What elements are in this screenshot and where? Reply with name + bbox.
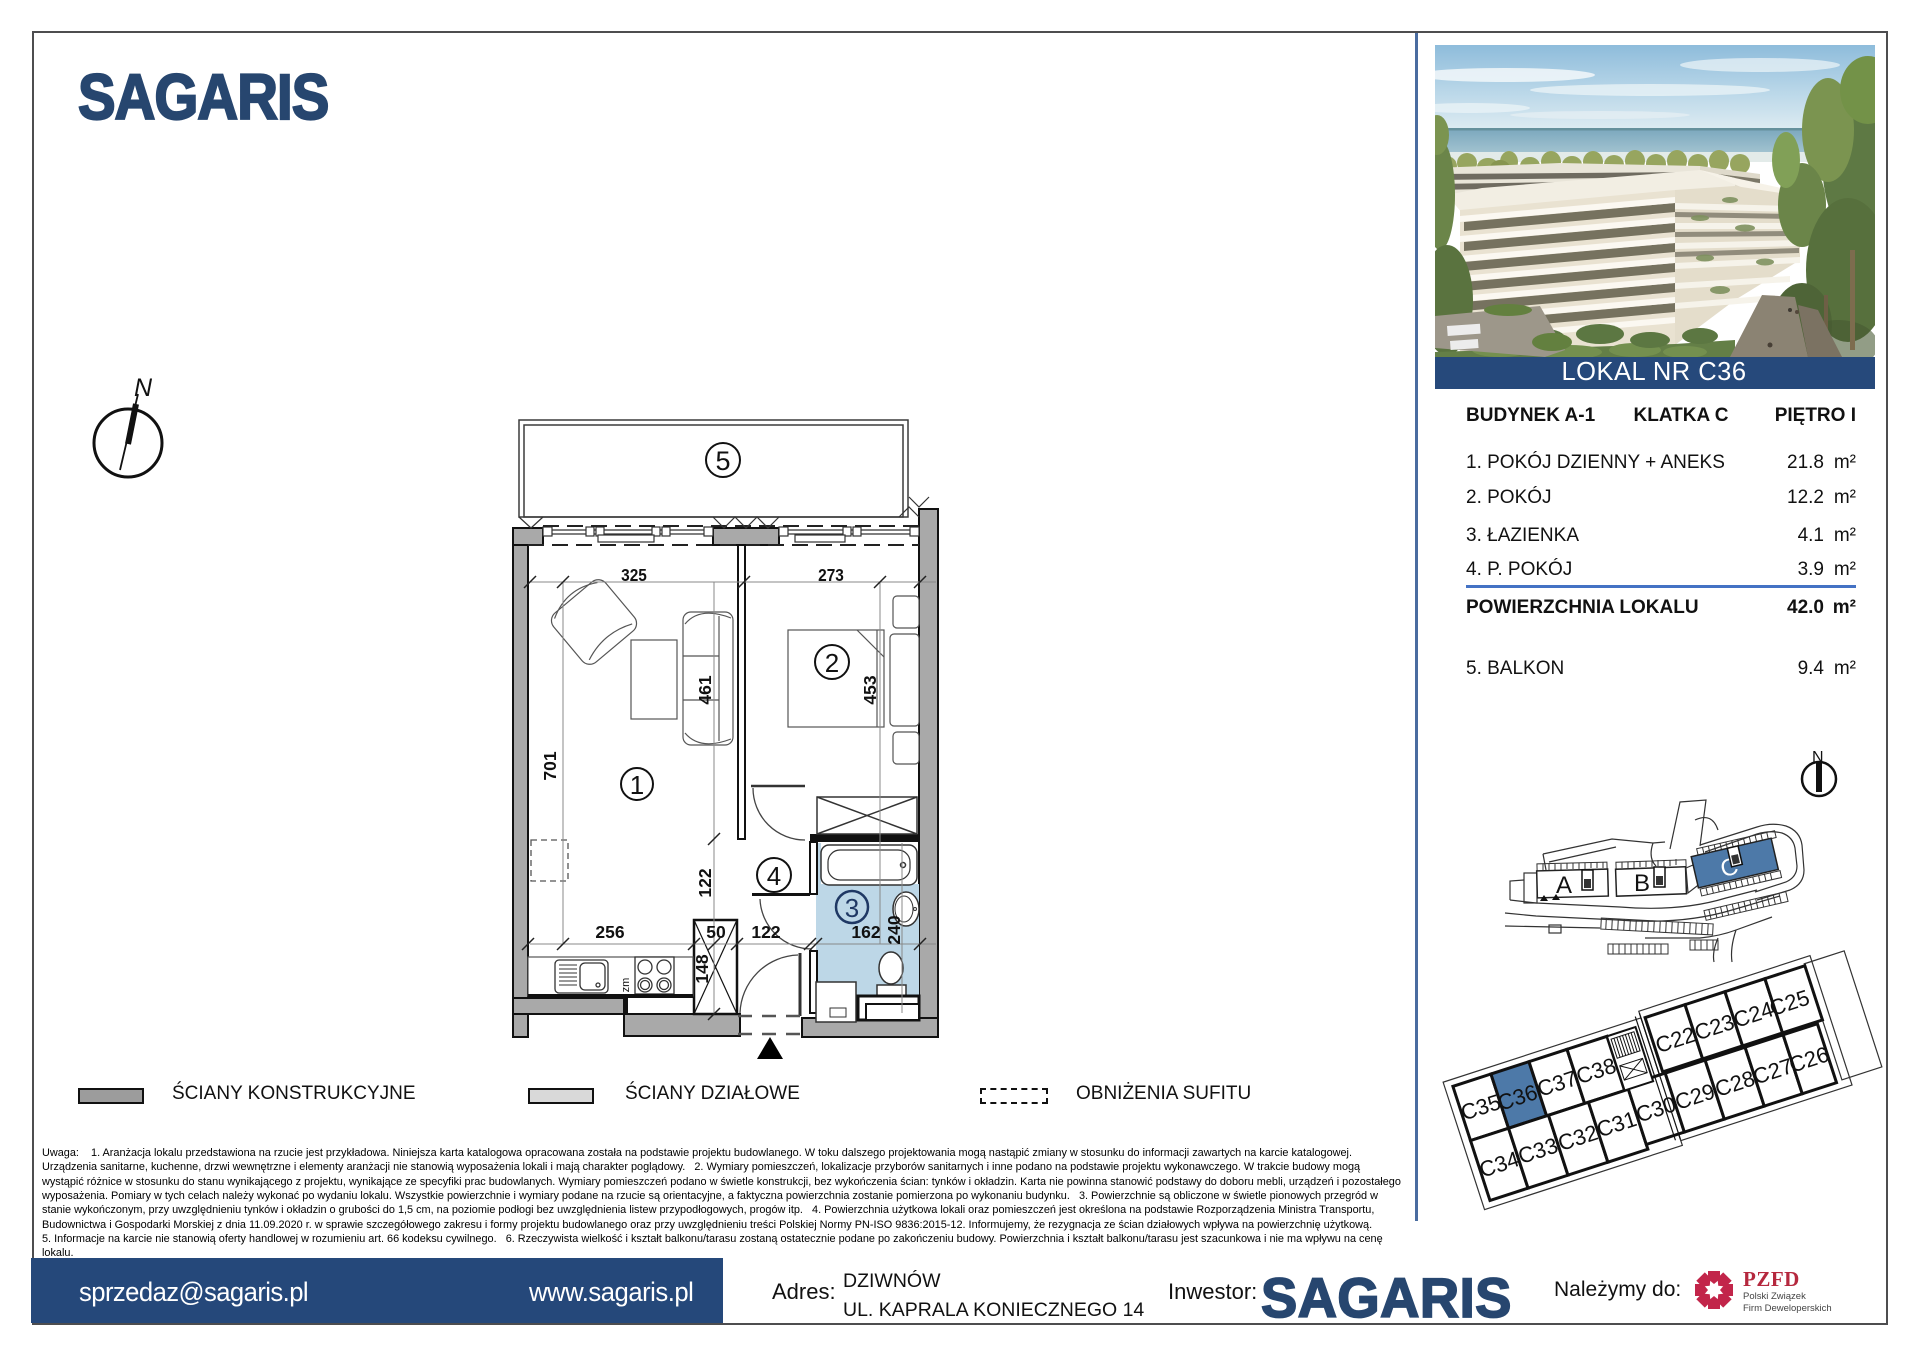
svg-text:148: 148 (692, 954, 712, 983)
svg-text:453: 453 (860, 675, 880, 704)
svg-text:3: 3 (845, 893, 859, 923)
svg-text:LOKAL NR C36: LOKAL NR C36 (1561, 358, 1746, 386)
svg-text:122: 122 (751, 922, 780, 942)
svg-text:4: 4 (767, 861, 781, 891)
svg-text:273: 273 (818, 566, 844, 585)
svg-text:122: 122 (695, 868, 715, 897)
svg-text:N: N (1812, 749, 1824, 766)
svg-text:A: A (1556, 872, 1572, 899)
svg-text:B: B (1634, 870, 1650, 897)
svg-text:325: 325 (621, 566, 647, 585)
svg-text:zm: zm (620, 978, 632, 993)
svg-text:256: 256 (595, 922, 624, 942)
svg-text:N: N (134, 374, 153, 402)
svg-text:162: 162 (851, 922, 880, 942)
svg-text:1: 1 (630, 770, 644, 800)
svg-text:461: 461 (695, 675, 715, 704)
svg-text:2: 2 (825, 648, 839, 678)
svg-text:50: 50 (706, 922, 726, 942)
svg-text:5: 5 (715, 446, 730, 476)
svg-text:701: 701 (540, 751, 560, 780)
svg-text:240: 240 (884, 915, 904, 944)
